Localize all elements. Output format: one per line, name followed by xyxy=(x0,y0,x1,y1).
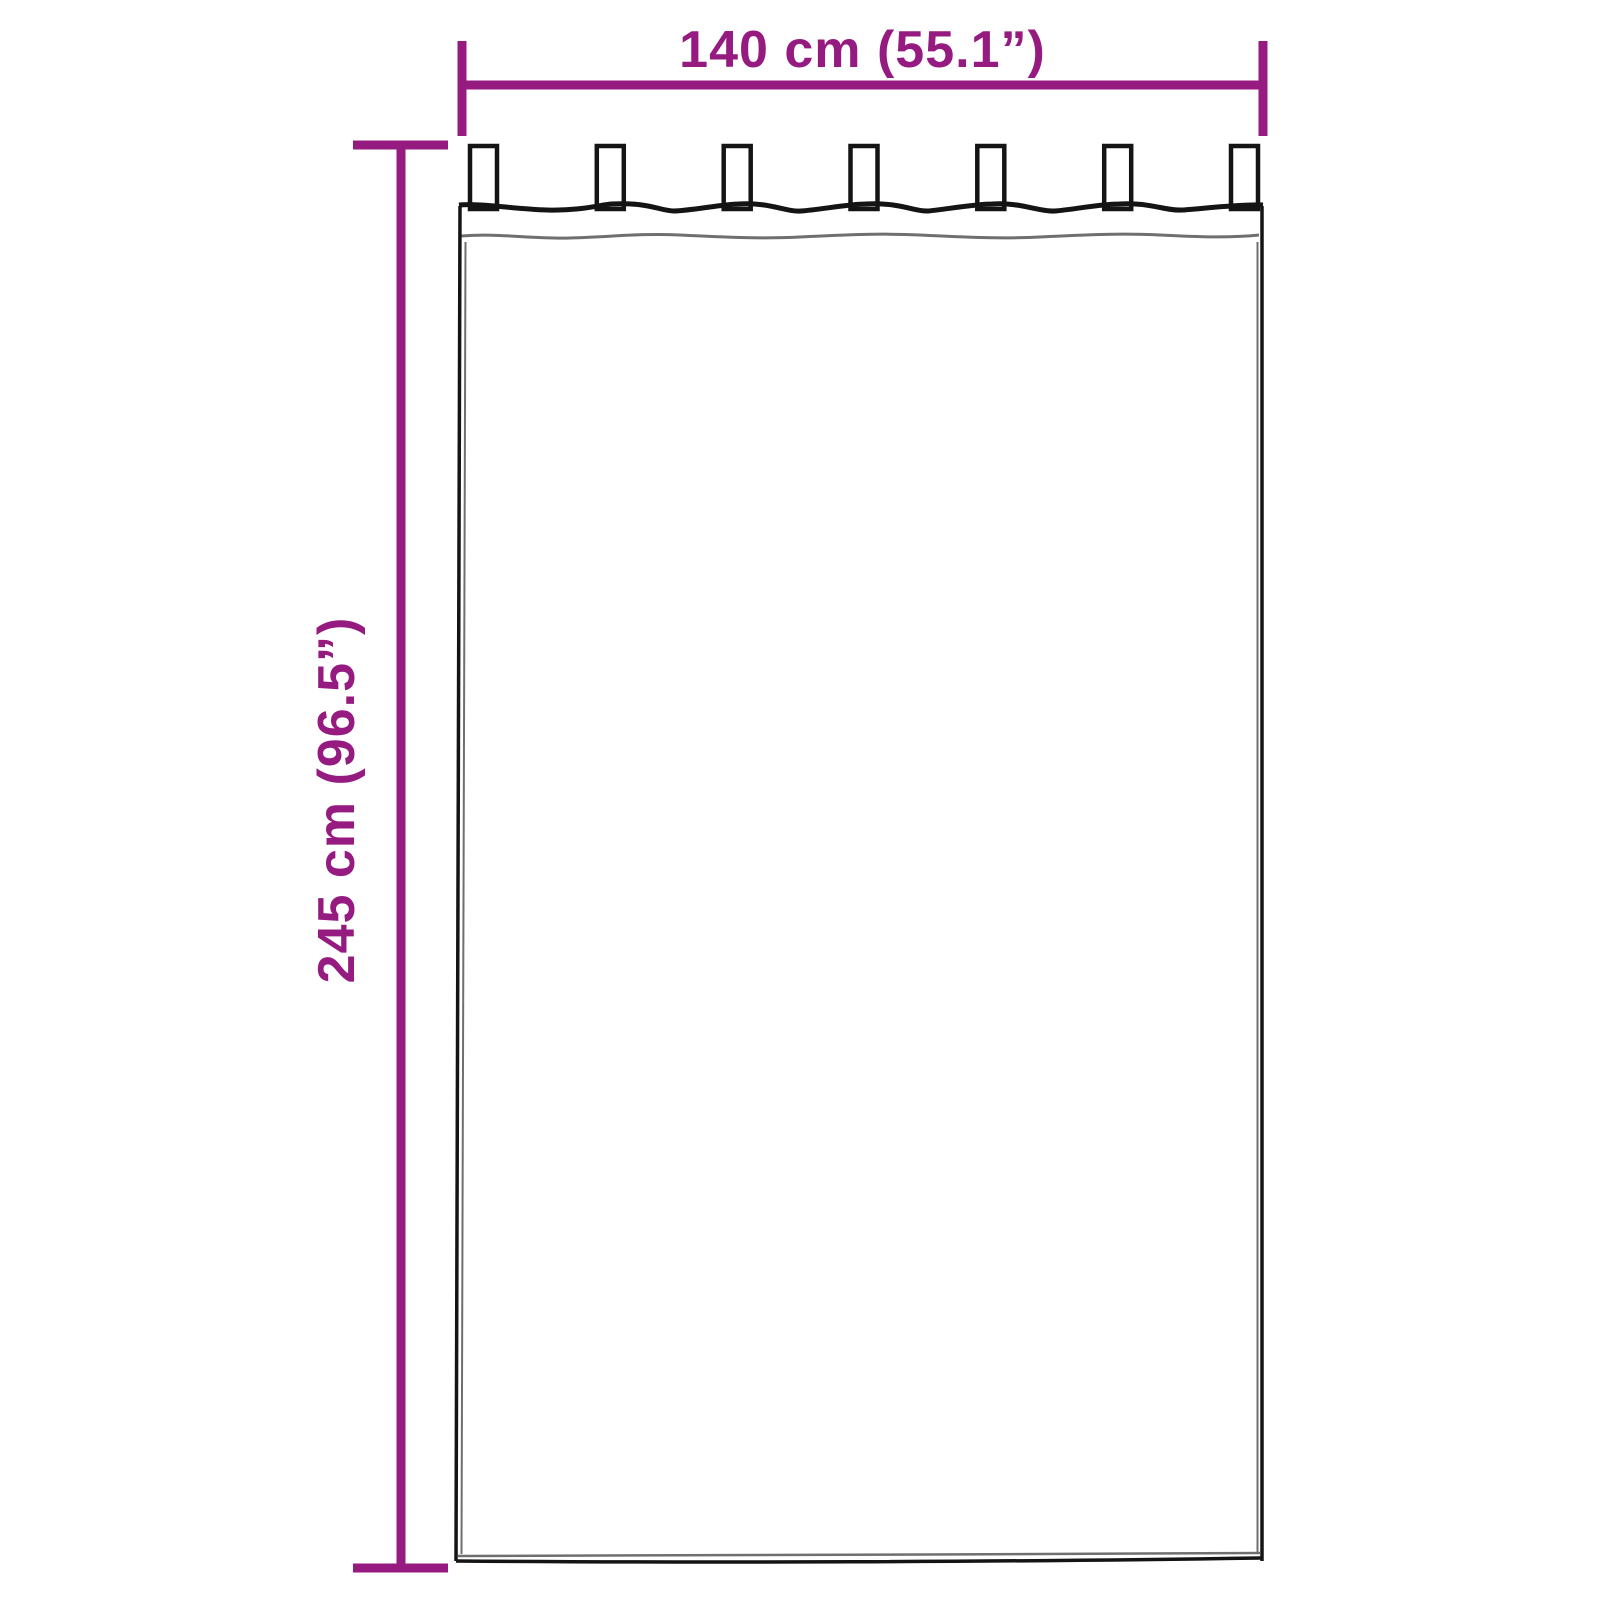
curtain-drawing xyxy=(456,146,1263,1562)
curtain-tab xyxy=(1231,146,1258,209)
curtain-tab xyxy=(724,146,751,209)
curtain-dimension-diagram: 140 cm (55.1”) 245 cm (96.5”) xyxy=(0,0,1600,1600)
width-dimension-label: 140 cm (55.1”) xyxy=(462,24,1263,76)
curtain-tab xyxy=(597,146,624,209)
curtain-tab xyxy=(851,146,878,209)
height-dimension-label: 245 cm (96.5”) xyxy=(311,617,363,984)
curtain-panel xyxy=(458,206,1262,1560)
curtain-tabs xyxy=(470,146,1258,209)
height-dimension-line xyxy=(353,145,448,1568)
curtain-tab xyxy=(470,146,497,209)
diagram-canvas xyxy=(0,0,1600,1600)
curtain-tab xyxy=(977,146,1004,209)
curtain-tab xyxy=(1104,146,1131,209)
